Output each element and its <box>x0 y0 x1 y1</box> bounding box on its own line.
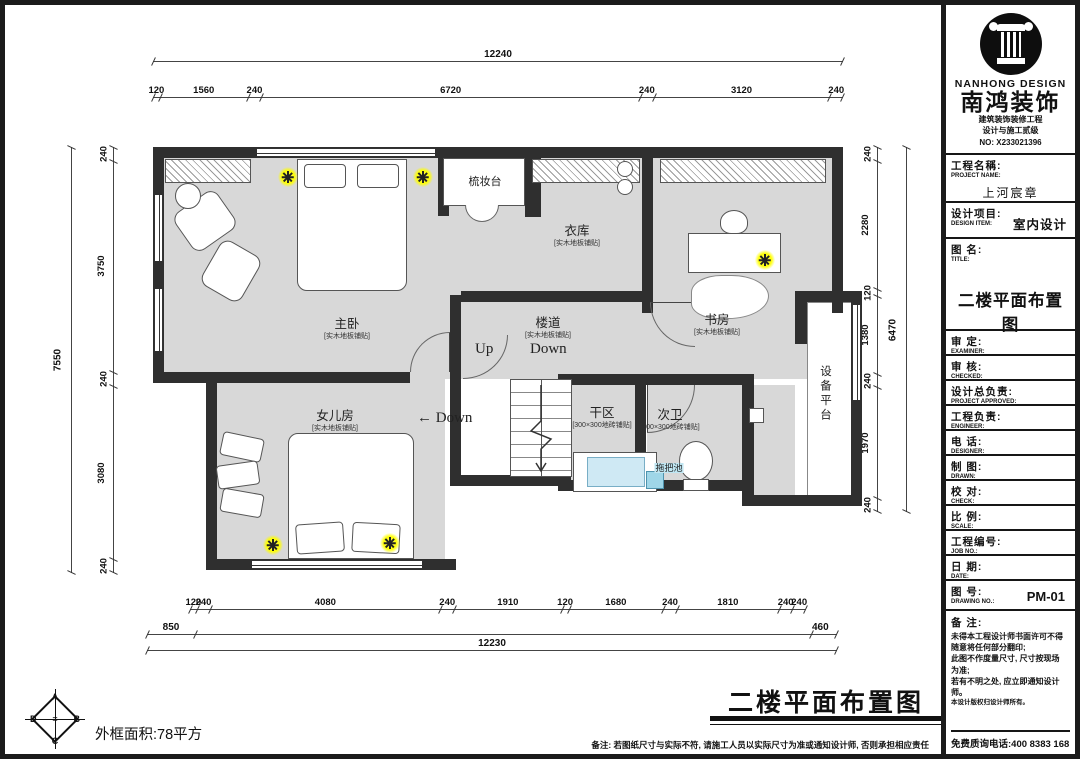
remark-line: 若有不明之处, 应立即通知设计 <box>951 676 1070 687</box>
toilet-tank <box>683 479 709 491</box>
pillow <box>357 164 399 188</box>
titleblock-row-7: 电 话:DESIGNER: <box>946 431 1075 456</box>
wall <box>558 374 754 385</box>
compass-letter: B <box>74 714 81 724</box>
titleblock-row-5: 设计总负责:PROJECT APPROVED: <box>946 381 1075 406</box>
ceiling-light-icon <box>413 167 433 187</box>
remark-line: 未得本工程设计师书面许可不得 <box>951 631 1070 642</box>
label-down: Down <box>530 341 567 358</box>
ceiling-light-icon <box>755 250 775 270</box>
cert-line: 建筑装饰装修工程 <box>948 115 1073 125</box>
wardrobe-hatch <box>660 159 826 183</box>
floor-plan: 主卧[实木地板铺贴] 梳妆台 衣库[实木地板铺贴] 书房[实木地板铺贴] 楼道[… <box>5 5 936 754</box>
titleblock-logo: NANHONG DESIGN 南鸿装饰 建筑装饰装修工程 设计与施工贰级 NO:… <box>946 5 1075 155</box>
wall <box>742 495 862 506</box>
remark-phone: 免费质询电话:400 8383 168 <box>951 730 1070 750</box>
compass-letter: C <box>52 736 59 746</box>
wall <box>642 147 653 313</box>
label-mop-sink: 拖把池 <box>654 458 683 476</box>
wall <box>461 291 642 302</box>
remark-lines: 未得本工程设计师书面许可不得随意将任何部分翻印;此图不作度量尺寸, 尺寸按现场为… <box>951 631 1070 707</box>
remark-line: 本设计版权归设计师所有。 <box>951 698 1070 707</box>
window <box>154 289 163 351</box>
window <box>257 148 435 157</box>
plan-footer-note: 备注: 若图纸尺寸与实际不符, 请施工人员以实际尺寸为准或通知设计师, 否则承担… <box>591 739 929 751</box>
stair-direction-arrow <box>521 383 561 473</box>
titleblock-row-11: 工程编号:JOB NO.: <box>946 531 1075 556</box>
wardrobe-hatch <box>165 159 251 183</box>
pillow <box>304 164 346 188</box>
title-rule <box>710 716 942 721</box>
appliance <box>617 161 633 177</box>
remark-line: 为准; <box>951 665 1070 676</box>
room-label-daughter-room: 女儿房[实木地板铺贴] <box>312 407 358 433</box>
wall <box>832 147 843 313</box>
toilet <box>679 441 713 481</box>
titleblock-row-6: 工程负责:ENGINEER: <box>946 406 1075 431</box>
titleblock-row-4: 审 核:CHECKED: <box>946 356 1075 381</box>
left-arrow-icon: ← <box>417 410 432 426</box>
titleblock-row-3: 审 定:EXAMINER: <box>946 331 1075 356</box>
room-label-corridor: 楼道[实木地板铺贴] <box>525 314 571 340</box>
remark-line: 师。 <box>951 687 1070 698</box>
titleblock-row-13: 图 号:DRAWING NO.:PM-01 <box>946 581 1075 611</box>
titleblock-row-2: 图 名:TITLE:二楼平面布置图 <box>946 239 1075 331</box>
appliance <box>617 179 633 195</box>
titleblock-row-8: 制 图:DRAWN: <box>946 456 1075 481</box>
remark-line: 此图不作度量尺寸, 尺寸按现场 <box>951 653 1070 664</box>
remark-line: 随意将任何部分翻印; <box>951 642 1070 653</box>
cert-line: 设计与施工贰级 <box>948 126 1073 136</box>
area-label: 外框面积:78平方 <box>95 723 202 744</box>
remark-label: 备 注: <box>951 615 1070 630</box>
window <box>852 305 861 400</box>
compass-icon: A D B C ≡ <box>27 691 83 747</box>
compass-letter: D <box>30 714 37 724</box>
label-down-arrow: ← Down <box>417 410 472 427</box>
titleblock-row-12: 日 期:DATE: <box>946 556 1075 581</box>
wall <box>164 372 410 383</box>
title-rule <box>710 724 942 725</box>
desk-chair <box>720 210 748 234</box>
floor-drain <box>749 408 764 423</box>
wall <box>795 302 807 344</box>
drawing-sheet: 12240 120156024067202403120240 7550 2403… <box>0 0 1080 759</box>
titleblock-row-9: 校 对:CHECK: <box>946 481 1075 506</box>
label-up: Up <box>475 341 493 358</box>
ceiling-light-icon <box>263 535 283 555</box>
window <box>154 195 163 261</box>
floor-shower <box>754 385 795 495</box>
cert-no: NO: X233021396 <box>948 138 1073 147</box>
ceiling-light-icon <box>278 167 298 187</box>
plan-title: 二楼平面布置图 <box>710 683 942 719</box>
room-label-dry-area: 干区[300×300地砖铺贴] <box>572 404 631 430</box>
side-table <box>175 183 201 209</box>
wall <box>742 374 754 506</box>
ceiling-light-icon <box>380 533 400 553</box>
room-label-bathroom: 次卫[300×300地砖铺贴] <box>640 406 699 432</box>
titleblock: NANHONG DESIGN 南鸿装饰 建筑装饰装修工程 设计与施工贰级 NO:… <box>941 5 1075 754</box>
room-label-cloakroom: 衣库[实木地板铺贴] <box>554 222 600 248</box>
brand-cn: 南鸿装饰 <box>948 90 1073 115</box>
wall <box>450 295 461 486</box>
room-label-dressing-table: 梳妆台 <box>469 172 502 190</box>
titleblock-row-10: 比 例:SCALE: <box>946 506 1075 531</box>
nanhong-column-logo-icon <box>980 13 1042 75</box>
titleblock-remark: 备 注: 未得本工程设计师书面许可不得随意将任何部分翻印;此图不作度量尺寸, 尺… <box>946 611 1075 754</box>
window <box>252 560 422 569</box>
titleblock-row-0: 工程名稱:PROJECT NAME:上河宸章 <box>946 155 1075 203</box>
compass-letter: A <box>52 692 59 702</box>
titleblock-fields: 工程名稱:PROJECT NAME:上河宸章设计项目:DESIGN ITEM:室… <box>946 155 1075 611</box>
room-label-study: 书房[实木地板铺贴] <box>694 311 740 337</box>
room-label-master-bedroom: 主卧[实木地板铺贴] <box>324 315 370 341</box>
pillow <box>295 521 345 554</box>
label-equipment-platform: 设备平台 <box>817 365 833 423</box>
wash-basin <box>587 457 645 487</box>
titleblock-row-1: 设计项目:DESIGN ITEM:室内设计 <box>946 203 1075 239</box>
compass-equals: ≡ <box>52 714 57 724</box>
